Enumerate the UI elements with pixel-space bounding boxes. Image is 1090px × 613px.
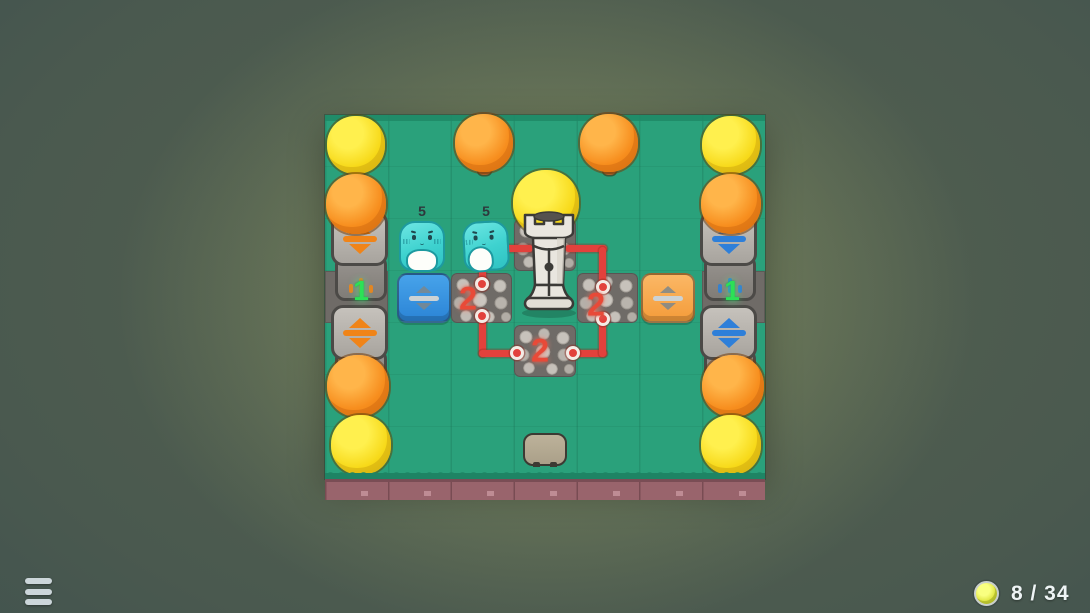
tree-orange [327,355,389,417]
slime-left-count: 5 [418,203,426,219]
slime-right[interactable] [462,220,511,272]
lane-counter-left: 1 [353,275,369,307]
tree-orange [580,114,638,172]
bar-icon [653,296,683,301]
grass-edge [325,467,765,479]
rook-tower[interactable] [517,203,581,319]
tree-yellow [702,116,760,174]
down-arrow-icon [416,303,432,310]
flat-arrow-tile-blue[interactable] [397,273,451,323]
slime-belly [467,246,494,273]
rock-count-left: 2 [459,281,477,318]
tree-orange [326,174,386,234]
flat-arrow-tile-orange[interactable] [641,273,695,323]
game-board: 1 1 [325,115,765,500]
score-text: 8 / 34 [1011,582,1070,606]
rock-count-bottom: 2 [531,333,549,370]
slime-belly [406,249,438,272]
tree-yellow [331,415,391,475]
tree-yellow [701,415,761,475]
tree-orange [455,114,513,172]
wire-socket [566,346,580,360]
tree-orange [702,355,764,417]
up-down-arrows-icon [700,305,757,360]
slime-right-count: 5 [482,203,490,219]
dirt-edge [325,479,765,500]
wire-socket [510,346,524,360]
coin-icon [974,581,999,606]
up-down-arrows-icon [331,305,388,360]
bar-icon [409,296,439,301]
score-display: 8 / 34 [974,581,1070,606]
up-arrow-icon [660,286,676,293]
tree-orange [701,174,761,234]
up-arrow-icon [416,286,432,293]
hamburger-menu-icon[interactable] [25,578,52,610]
rock-count-right: 2 [587,287,605,324]
down-arrow-icon [660,303,676,310]
slime-left[interactable] [399,221,445,271]
stone-slab [523,433,567,466]
tree-yellow [327,116,385,174]
board-top-edge [325,115,765,121]
lane-counter-right: 1 [724,275,740,307]
